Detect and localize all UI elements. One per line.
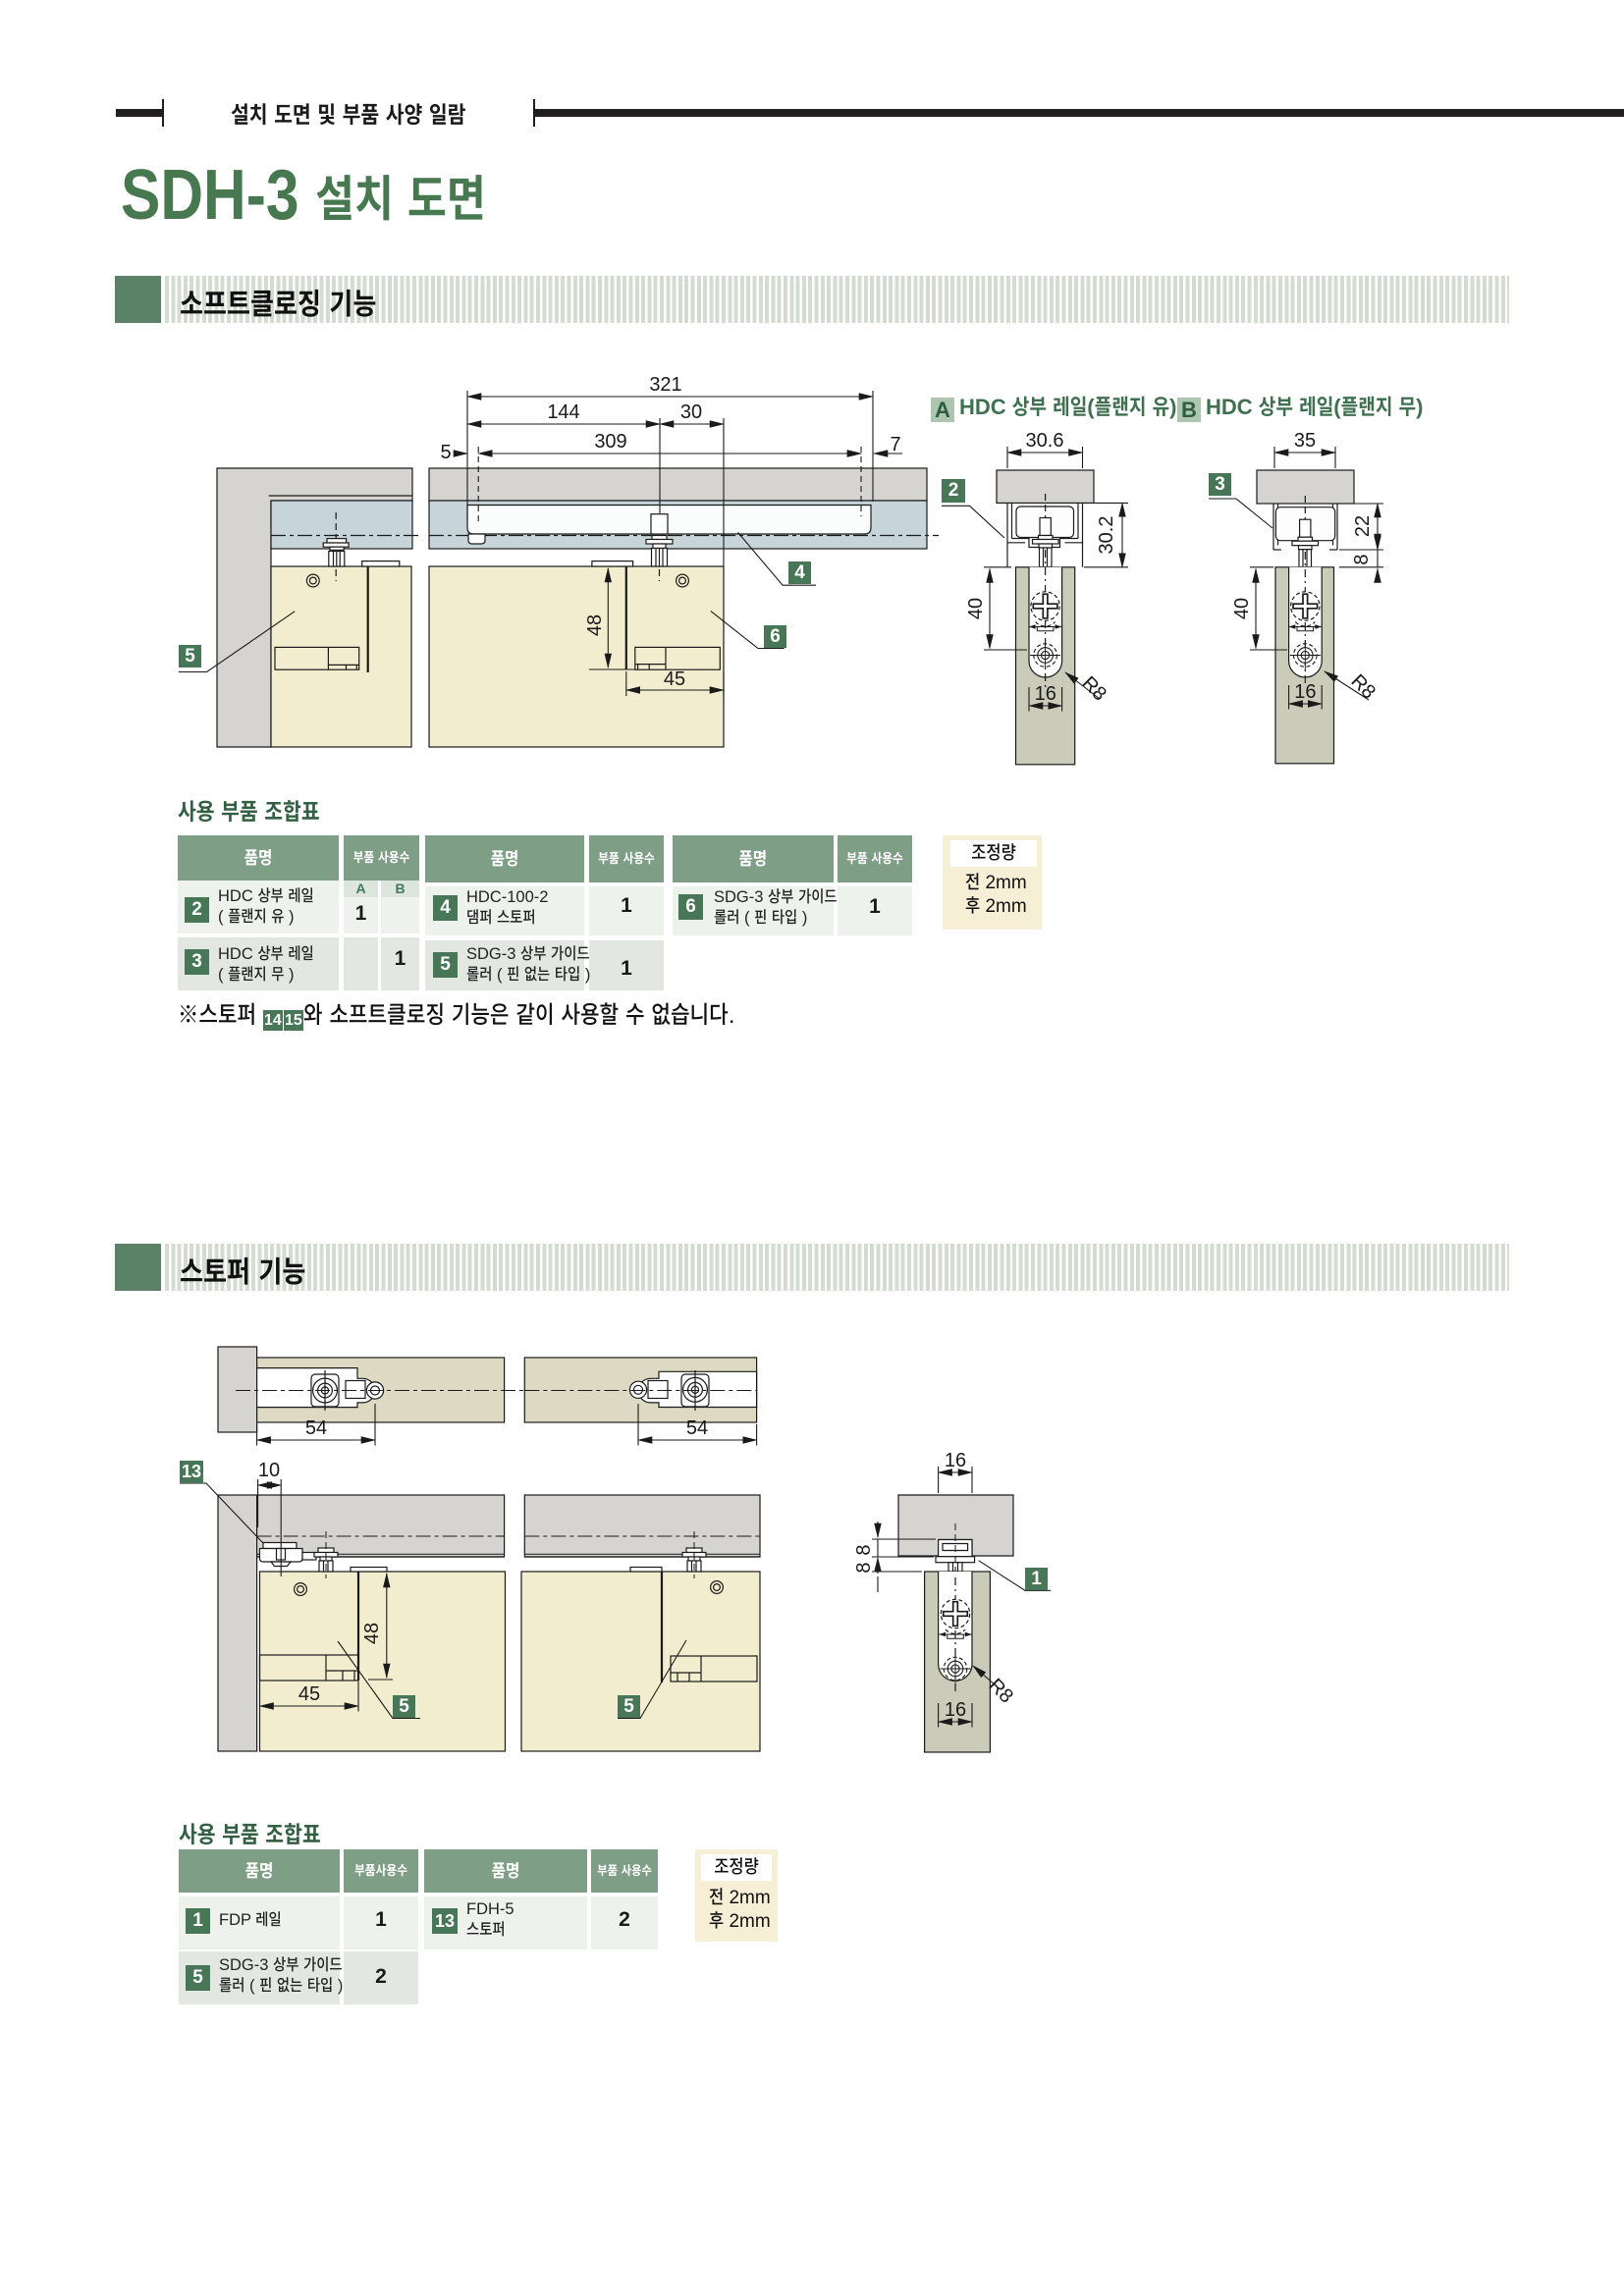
svg-text:45: 45 (664, 668, 685, 690)
svg-text:8: 8 (853, 1544, 875, 1555)
svg-text:40: 40 (965, 598, 987, 619)
svg-text:16: 16 (1294, 681, 1316, 703)
svg-text:309: 309 (594, 431, 626, 453)
svg-text:7: 7 (890, 434, 900, 455)
svg-text:R8: R8 (1077, 672, 1110, 706)
svg-text:16: 16 (945, 1699, 966, 1721)
svg-text:30.2: 30.2 (1096, 516, 1117, 555)
svg-text:5: 5 (440, 442, 451, 463)
svg-text:16: 16 (945, 1450, 966, 1471)
svg-text:35: 35 (1294, 430, 1316, 452)
svg-text:10: 10 (258, 1460, 280, 1481)
svg-text:144: 144 (547, 401, 579, 423)
svg-text:8: 8 (1351, 554, 1373, 564)
svg-text:8: 8 (853, 1562, 875, 1573)
svg-text:40: 40 (1231, 598, 1253, 619)
svg-text:54: 54 (686, 1417, 708, 1439)
svg-text:R8: R8 (1346, 670, 1380, 704)
svg-text:54: 54 (305, 1417, 327, 1439)
svg-text:48: 48 (361, 1623, 383, 1644)
svg-text:321: 321 (649, 374, 681, 396)
svg-text:48: 48 (584, 614, 606, 636)
svg-text:45: 45 (298, 1683, 320, 1705)
svg-text:22: 22 (1352, 515, 1374, 537)
svg-text:30.6: 30.6 (1026, 430, 1064, 452)
svg-text:30: 30 (680, 401, 702, 423)
svg-text:16: 16 (1035, 683, 1056, 705)
